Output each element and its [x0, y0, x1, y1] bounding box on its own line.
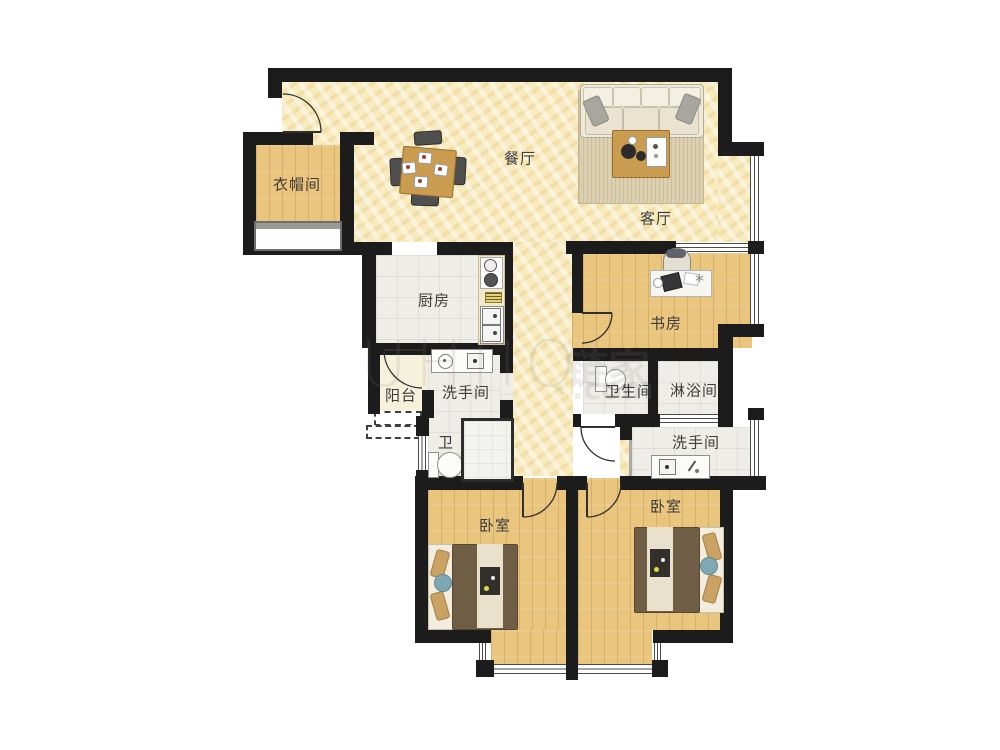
plate-dot: [422, 155, 426, 159]
sink-basin: [482, 308, 501, 325]
wall-segment: [566, 476, 578, 680]
floor-bedroom-right-bay: [578, 630, 652, 666]
floor-hallway: [513, 242, 573, 476]
teacup: [653, 278, 663, 288]
room-label-study: 书房: [650, 313, 682, 334]
room-label-cloakroom: 衣帽间: [273, 174, 321, 195]
window-study-bay: [750, 254, 759, 324]
window-toilet: [418, 436, 426, 470]
bed-round-cushion: [700, 557, 718, 575]
sofa-back-cushion: [613, 87, 641, 107]
bed-lamp-dot: [484, 586, 489, 591]
wall-segment: [362, 242, 392, 255]
plate-dot: [406, 165, 410, 169]
wall-segment: [652, 660, 668, 677]
coffee-table-tray: [646, 137, 667, 167]
room-label-bathroom: 卫生间: [605, 381, 653, 402]
wall-segment: [415, 630, 491, 643]
wall-segment: [718, 142, 764, 156]
wall-segment: [422, 390, 434, 418]
room-label-bedroom-right: 卧室: [650, 496, 682, 517]
room-label-dining: 餐厅: [504, 148, 536, 169]
sink-dot: [665, 465, 669, 469]
floor-plan: *: [0, 0, 1000, 750]
stove-burner: [484, 273, 498, 287]
wall-segment: [573, 414, 581, 427]
sink-basin: [482, 325, 501, 342]
wall-segment: [416, 416, 429, 436]
room-label-washroom1: 洗手间: [442, 382, 490, 403]
room-label-balcony: 阳台: [385, 385, 417, 406]
bathroom-door-arc: [581, 427, 615, 461]
plate-dot: [418, 179, 422, 183]
desk-ornament: *: [695, 273, 704, 291]
grill-item: [485, 292, 502, 303]
desk: *: [650, 270, 712, 297]
bed-right: [634, 527, 722, 611]
laptop: [660, 272, 682, 292]
basin-dot: [493, 331, 497, 335]
wall-segment: [415, 476, 428, 643]
kitchen-counter: [478, 255, 505, 345]
room-label-bedroom-left: 卧室: [479, 515, 511, 536]
wall-segment: [748, 241, 764, 254]
bed-left: [428, 544, 516, 628]
floor-study-door-patch: [572, 313, 583, 348]
sofa-back-cushion: [641, 87, 669, 107]
room-label-washroom2: 洗手间: [672, 432, 720, 453]
window-living-study-partition: [676, 243, 750, 252]
wall-segment: [620, 414, 632, 440]
wall-segment: [476, 660, 494, 677]
bed-round-cushion: [434, 574, 452, 592]
shower-stall: [461, 418, 514, 482]
window-bay-right: [578, 664, 654, 674]
window-bay-left: [492, 664, 568, 674]
basin-dot: [493, 314, 497, 318]
floor-living-bay: [718, 156, 751, 242]
wall-segment: [573, 348, 733, 361]
bed-tray: [650, 549, 670, 577]
cloakroom-closet: [254, 221, 342, 251]
floor-washroom1-door-patch: [500, 373, 513, 400]
wall-segment: [718, 337, 733, 427]
room-label-toilet: 卫: [438, 432, 454, 453]
room-label-kitchen: 厨房: [418, 290, 450, 311]
wall-segment: [362, 242, 376, 348]
wall-segment: [368, 348, 380, 414]
wall-segment: [268, 68, 732, 82]
washroom1-vanity: [431, 349, 493, 373]
washroom2-vanity: [651, 455, 710, 479]
sink-dot: [443, 359, 446, 362]
hood-dial: [484, 259, 497, 272]
dining-chair: [414, 130, 443, 146]
coffee-table-cup: [628, 136, 637, 145]
plate-dot: [438, 167, 442, 171]
balcony-open-edge-2: [366, 425, 420, 439]
wall-segment: [340, 132, 354, 255]
closet-rail: [256, 223, 340, 229]
coffee-table-bowl: [636, 151, 646, 161]
wall-segment: [748, 408, 764, 420]
room-label-living: 客厅: [640, 208, 672, 229]
bed-dot: [661, 558, 665, 562]
floor-bedroom-left-bay: [491, 630, 566, 666]
window-living-bay: [750, 152, 759, 242]
wall-segment: [572, 250, 583, 313]
bed-tray: [480, 567, 500, 595]
wall-segment: [268, 82, 282, 98]
faucet-dot: [695, 469, 699, 473]
desk-chair-back: [666, 249, 686, 258]
toilet-bowl: [437, 452, 463, 478]
coffee-table-bowl: [621, 144, 636, 159]
shower-sliding-door: [658, 414, 718, 423]
tray-dot: [653, 144, 658, 149]
bed-dot: [491, 576, 495, 580]
wall-segment: [718, 324, 764, 337]
soap-dot: [473, 359, 477, 363]
room-label-shower: 淋浴间: [670, 380, 718, 401]
coffee-table: [612, 130, 670, 178]
tray-dot: [654, 154, 658, 158]
balcony-open-edge-1: [374, 411, 422, 426]
window-washroom2: [750, 420, 759, 477]
bed-lamp-dot: [654, 567, 659, 572]
